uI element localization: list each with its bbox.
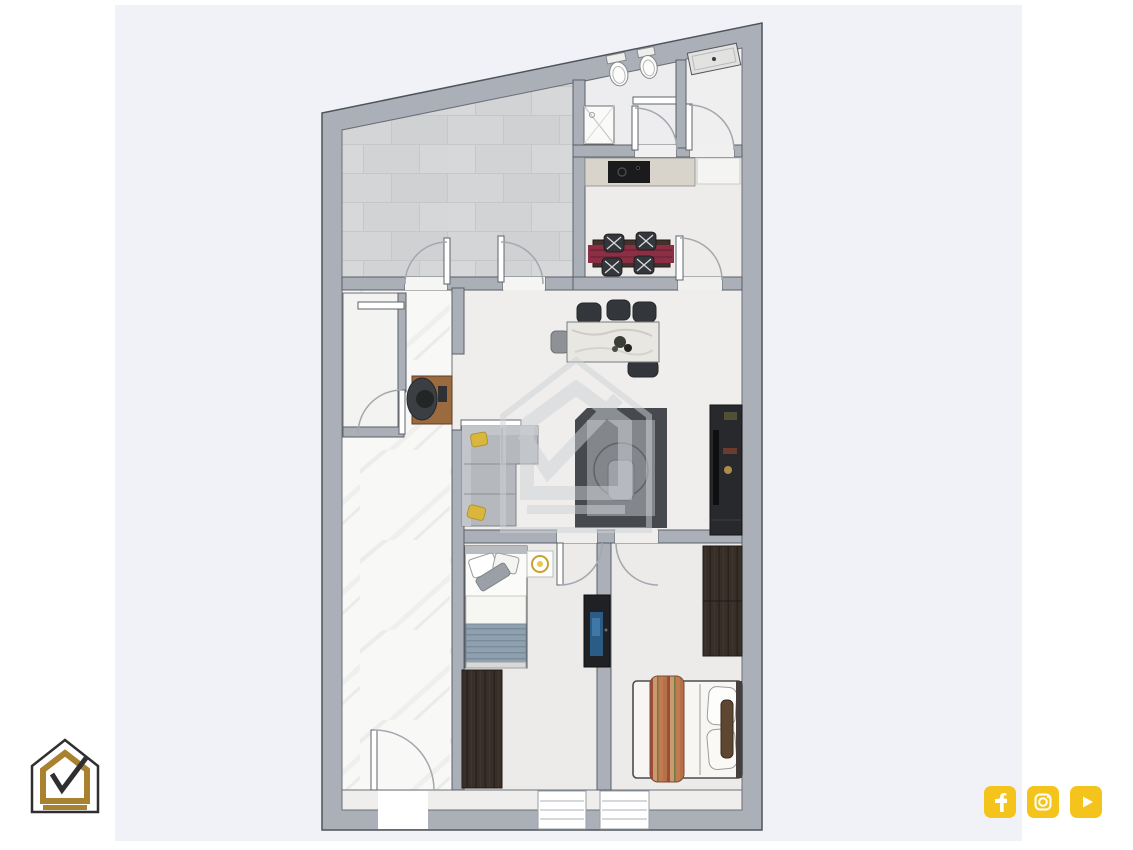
tv-screen-living bbox=[713, 430, 719, 505]
island-table bbox=[567, 322, 659, 362]
headboard bbox=[465, 546, 527, 554]
social-links: f bbox=[984, 786, 1102, 818]
double-bed bbox=[633, 676, 742, 782]
tv-panel-bedroom bbox=[584, 595, 610, 667]
desk-laptop bbox=[438, 386, 447, 402]
stool-gray bbox=[551, 331, 569, 353]
brand-logo bbox=[28, 737, 102, 815]
kitchen-counter-white bbox=[697, 158, 740, 184]
tv-unit bbox=[710, 405, 742, 535]
logo-bar bbox=[43, 805, 87, 810]
desk-area bbox=[407, 376, 452, 424]
wardrobe-left bbox=[462, 670, 502, 788]
balcony-window-bar bbox=[358, 302, 404, 309]
pillow-yellow-1 bbox=[470, 432, 488, 448]
bolster-pillow bbox=[721, 700, 733, 758]
shower bbox=[584, 106, 614, 144]
single-bed bbox=[465, 546, 527, 668]
striped-blanket bbox=[650, 676, 684, 782]
table-runner bbox=[588, 245, 674, 263]
window-right-bedroom bbox=[600, 791, 649, 829]
window-left-bedroom bbox=[538, 791, 586, 829]
headboard-double bbox=[736, 681, 742, 778]
floorplan-image bbox=[0, 0, 1133, 850]
room-small-balcony bbox=[343, 293, 398, 427]
blanket bbox=[466, 624, 526, 664]
instagram-icon[interactable] bbox=[1027, 786, 1059, 818]
youtube-icon[interactable] bbox=[1070, 786, 1102, 818]
cooktop bbox=[608, 161, 650, 183]
ceiling-light bbox=[527, 551, 553, 577]
facebook-icon[interactable]: f bbox=[984, 786, 1016, 818]
